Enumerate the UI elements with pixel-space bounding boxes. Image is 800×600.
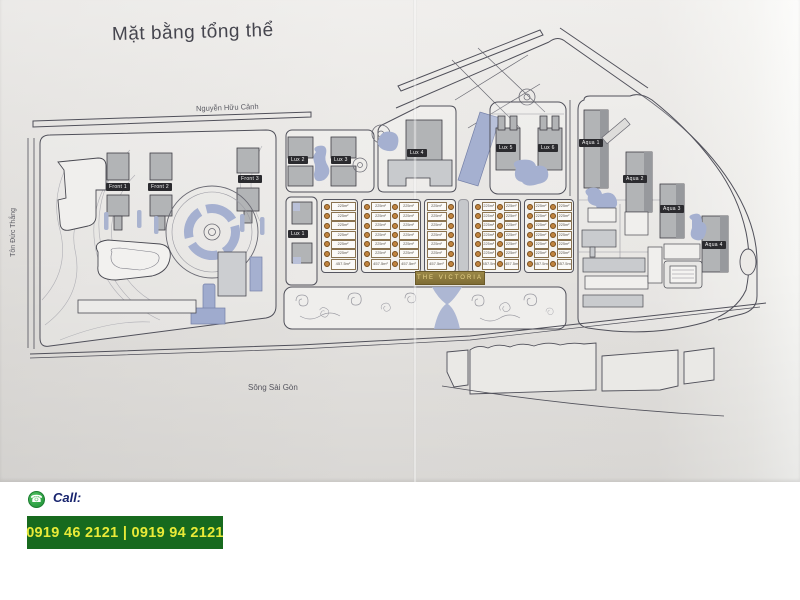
villa-lot: 225m²: [534, 240, 549, 249]
villa-lot: 225m²: [399, 249, 419, 258]
lot-number-marker: [448, 261, 454, 267]
lot-number-marker: [497, 232, 503, 238]
lot-number-marker: [364, 204, 370, 210]
villa-lot: 225m²: [427, 202, 447, 211]
aqua-2-label: Aqua 2: [623, 175, 647, 183]
lot-number-marker: [550, 251, 556, 257]
villa-lot: 225m²: [427, 249, 447, 258]
lot-number-marker: [527, 204, 533, 210]
lot-number-marker: [324, 232, 330, 238]
lot-number-marker: [364, 223, 370, 229]
villa-lot: 225m²: [557, 202, 572, 211]
villa-lot: 457.5m²: [557, 259, 572, 270]
lot-number-marker: [497, 204, 503, 210]
river-label: Sông Sài Gòn: [248, 383, 298, 392]
villa-lot: 225m²: [482, 202, 497, 211]
villa-lot: 457.5m²: [427, 259, 447, 270]
villa-cluster: 225m²225m²225m²225m²225m²225m²457.5m²: [321, 199, 358, 273]
phone-icon: ☎: [28, 491, 45, 508]
lot-number-marker: [527, 213, 533, 219]
call-label: Call:: [53, 490, 81, 505]
lot-number-marker: [475, 251, 481, 257]
aqua-parcel: [578, 95, 756, 332]
villa-lot: 225m²: [371, 231, 391, 240]
villa-lot: 225m²: [399, 212, 419, 221]
villa-lot: 225m²: [371, 249, 391, 258]
villa-lot: 225m²: [482, 212, 497, 221]
lot-number-marker: [324, 223, 330, 229]
villa-lot: 457.5m²: [504, 259, 519, 270]
villa-lot: 457.5m²: [534, 259, 549, 270]
lux-parcel: [286, 106, 456, 192]
lot-number-marker: [448, 204, 454, 210]
lot-number-marker: [550, 223, 556, 229]
villa-lot: 225m²: [371, 240, 391, 249]
phone-numbers-button[interactable]: 0919 46 2121 | 0919 94 2121: [27, 516, 223, 549]
lot-number-marker: [364, 251, 370, 257]
lot-number-marker: [392, 232, 398, 238]
aqua-1-label: Aqua 1: [579, 139, 603, 147]
lot-number-marker: [497, 223, 503, 229]
villa-lot: 225m²: [427, 212, 447, 221]
site-plan-photo: 225m²225m²225m²225m²225m²225m²457.5m²225…: [0, 0, 800, 482]
lot-number-marker: [497, 241, 503, 247]
front-1-building: [107, 153, 129, 180]
lot-number-marker: [324, 241, 330, 247]
villa-lot: 225m²: [504, 249, 519, 258]
villa-lot: 225m²: [371, 221, 391, 230]
lot-number-marker: [364, 213, 370, 219]
villa-lot: 225m²: [482, 231, 497, 240]
villa-lot: 225m²: [331, 202, 356, 211]
front-1-label: Front 1: [106, 183, 130, 191]
villa-lot: 225m²: [482, 221, 497, 230]
villa-lot: 225m²: [427, 240, 447, 249]
lot-number-marker: [324, 213, 330, 219]
lot-number-marker: [550, 213, 556, 219]
villa-lot: 225m²: [534, 249, 549, 258]
lot-number-marker: [497, 251, 503, 257]
villa-cluster: 225m²225m²225m²225m²225m²225m²457.5m²: [424, 199, 456, 273]
lot-number-marker: [392, 213, 398, 219]
villa-lot: 225m²: [557, 231, 572, 240]
page-title: Mặt bằng tổng thể: [112, 20, 274, 46]
villa-lot: 225m²: [399, 240, 419, 249]
lux-2-label: Lux 2: [288, 156, 308, 164]
villa-lot: 225m²: [557, 240, 572, 249]
lot-number-marker: [497, 261, 503, 267]
villa-lot: 225m²: [504, 221, 519, 230]
villa-cluster: 225m²225m²225m²225m²225m²225m²225m²225m²…: [472, 199, 521, 273]
villa-lot: 225m²: [331, 240, 356, 249]
lot-number-marker: [527, 261, 533, 267]
lux-1-block: [286, 197, 317, 285]
villa-lot: 225m²: [371, 212, 391, 221]
lot-number-marker: [550, 204, 556, 210]
lot-number-marker: [364, 261, 370, 267]
villa-lot: 457.5m²: [399, 259, 419, 270]
cove: [740, 249, 756, 275]
lux-1-label: Lux 1: [288, 230, 308, 238]
lot-number-marker: [392, 204, 398, 210]
villa-lot: 225m²: [534, 231, 549, 240]
villa-lot: 457.5m²: [371, 259, 391, 270]
villa-lot: 225m²: [534, 212, 549, 221]
villa-lot: 225m²: [427, 231, 447, 240]
front-3-building: [237, 148, 259, 173]
lot-number-marker: [448, 223, 454, 229]
villa-lot: 457.5m²: [331, 259, 356, 270]
villa-lot: 225m²: [557, 249, 572, 258]
lot-number-marker: [392, 241, 398, 247]
lux-3-building: [331, 137, 356, 158]
lot-number-marker: [324, 204, 330, 210]
marina-piers: [442, 343, 724, 416]
lot-number-marker: [475, 232, 481, 238]
victoria-banner: THE VICTORIA: [415, 271, 485, 285]
villa-lot: 225m²: [331, 249, 356, 258]
lot-number-marker: [497, 213, 503, 219]
villa-lot: 225m²: [504, 212, 519, 221]
villa-lot: 225m²: [371, 202, 391, 211]
villa-lot: 225m²: [331, 221, 356, 230]
villa-lot: 225m²: [534, 221, 549, 230]
lot-number-marker: [527, 232, 533, 238]
villa-lot: 457.5m²: [482, 259, 497, 270]
lot-number-marker: [364, 232, 370, 238]
front-parcel: [40, 130, 276, 346]
villa-lot: 225m²: [399, 202, 419, 211]
villa-lot: 225m²: [504, 231, 519, 240]
lot-number-marker: [550, 261, 556, 267]
villa-lot: 225m²: [534, 202, 549, 211]
lot-number-marker: [475, 213, 481, 219]
park-building: [218, 252, 246, 296]
aqua-3-label: Aqua 3: [660, 205, 684, 213]
lot-number-marker: [527, 223, 533, 229]
villa-cluster: 225m²225m²225m²225m²225m²225m²225m²225m²…: [361, 199, 421, 273]
lot-number-marker: [527, 241, 533, 247]
front-3-label: Front 3: [238, 175, 262, 183]
victoria-garden-strip: [284, 287, 566, 329]
lot-number-marker: [550, 241, 556, 247]
lot-number-marker: [448, 251, 454, 257]
lot-number-marker: [475, 204, 481, 210]
aqua-4-label: Aqua 4: [702, 241, 726, 249]
villa-lot: 225m²: [399, 221, 419, 230]
lot-number-marker: [448, 232, 454, 238]
lot-number-marker: [475, 261, 481, 267]
lux-5-label: Lux 5: [496, 144, 516, 152]
front-2-building: [150, 153, 172, 180]
park-pool: [250, 257, 262, 291]
lot-number-marker: [550, 232, 556, 238]
lot-number-marker: [527, 251, 533, 257]
lot-number-marker: [364, 241, 370, 247]
lot-number-marker: [392, 261, 398, 267]
villa-lot: 225m²: [331, 212, 356, 221]
page: 225m²225m²225m²225m²225m²225m²457.5m²225…: [0, 0, 800, 600]
road-ton-duc-thang: [28, 138, 34, 349]
lux-3-label: Lux 3: [331, 156, 351, 164]
lux-6-label: Lux 6: [538, 144, 558, 152]
villa-lot: 225m²: [504, 240, 519, 249]
lot-number-marker: [324, 261, 330, 267]
villa-lot: 225m²: [331, 231, 356, 240]
lot-number-marker: [475, 223, 481, 229]
lux-2-building: [288, 137, 313, 158]
front-2-label: Front 2: [148, 183, 172, 191]
villa-lot: 225m²: [557, 212, 572, 221]
villa-lot: 225m²: [427, 221, 447, 230]
villa-lot: 225m²: [482, 249, 497, 258]
villa-lot: 225m²: [557, 221, 572, 230]
lot-number-marker: [448, 213, 454, 219]
villa-lot: 225m²: [504, 202, 519, 211]
villa-lot: 225m²: [399, 231, 419, 240]
lux-4-label: Lux 4: [407, 149, 427, 157]
lot-number-marker: [392, 223, 398, 229]
lot-number-marker: [392, 251, 398, 257]
villa-canal-strip: [458, 199, 469, 273]
lot-number-marker: [475, 241, 481, 247]
villa-cluster: 225m²225m²225m²225m²225m²225m²225m²225m²…: [524, 199, 574, 273]
lot-number-marker: [448, 241, 454, 247]
villa-lot: 225m²: [482, 240, 497, 249]
lot-number-marker: [324, 251, 330, 257]
street-label-ton-duc-thang: Tôn Đức Thắng: [10, 208, 17, 257]
long-low-building: [78, 300, 196, 313]
